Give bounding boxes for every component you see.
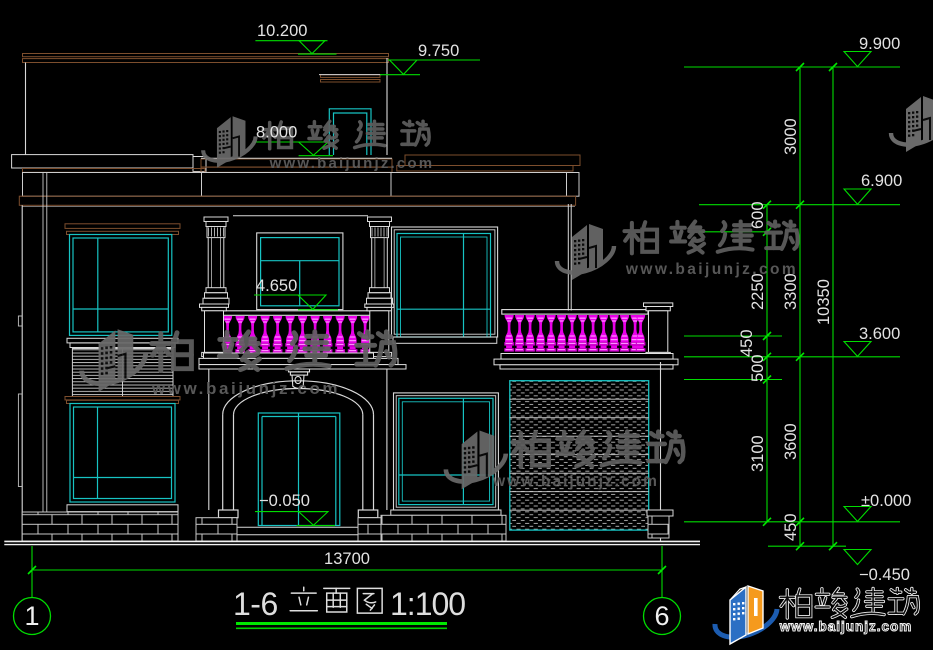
svg-text:1: 1 bbox=[24, 601, 39, 631]
svg-text:10350: 10350 bbox=[815, 279, 833, 325]
svg-text:8.000: 8.000 bbox=[256, 124, 297, 142]
svg-text:10.200: 10.200 bbox=[257, 22, 307, 40]
svg-text:1-6: 1-6 bbox=[233, 586, 278, 622]
svg-text:1:100: 1:100 bbox=[390, 586, 465, 622]
svg-text:www.baijunjz.com: www.baijunjz.com bbox=[625, 261, 798, 278]
svg-text:3000: 3000 bbox=[782, 118, 800, 155]
svg-text:9.900: 9.900 bbox=[859, 35, 900, 53]
svg-text:2250: 2250 bbox=[749, 273, 767, 310]
svg-text:www.baijunjz.com: www.baijunjz.com bbox=[151, 379, 340, 398]
svg-text:9.750: 9.750 bbox=[418, 42, 459, 60]
svg-text:www.baijunjz.com: www.baijunjz.com bbox=[269, 155, 435, 172]
svg-text:450: 450 bbox=[782, 513, 800, 541]
svg-text:6.900: 6.900 bbox=[861, 172, 902, 190]
svg-text:www.baijunjz.com: www.baijunjz.com bbox=[779, 619, 913, 634]
svg-text:13700: 13700 bbox=[324, 550, 370, 568]
svg-text:−0.450: −0.450 bbox=[859, 566, 910, 584]
svg-text:600: 600 bbox=[749, 201, 767, 229]
svg-text:3600: 3600 bbox=[782, 423, 800, 460]
svg-text:±0.000: ±0.000 bbox=[861, 492, 911, 510]
svg-text:4.650: 4.650 bbox=[256, 277, 297, 295]
svg-text:3300: 3300 bbox=[782, 273, 800, 310]
svg-text:3100: 3100 bbox=[749, 435, 767, 472]
svg-text:−0.050: −0.050 bbox=[259, 492, 310, 510]
svg-text:500: 500 bbox=[749, 354, 767, 382]
svg-text:6: 6 bbox=[654, 601, 669, 631]
svg-text:450: 450 bbox=[738, 329, 756, 357]
svg-text:3.600: 3.600 bbox=[859, 325, 900, 343]
svg-text:www.baijunjz.com: www.baijunjz.com bbox=[492, 473, 659, 490]
